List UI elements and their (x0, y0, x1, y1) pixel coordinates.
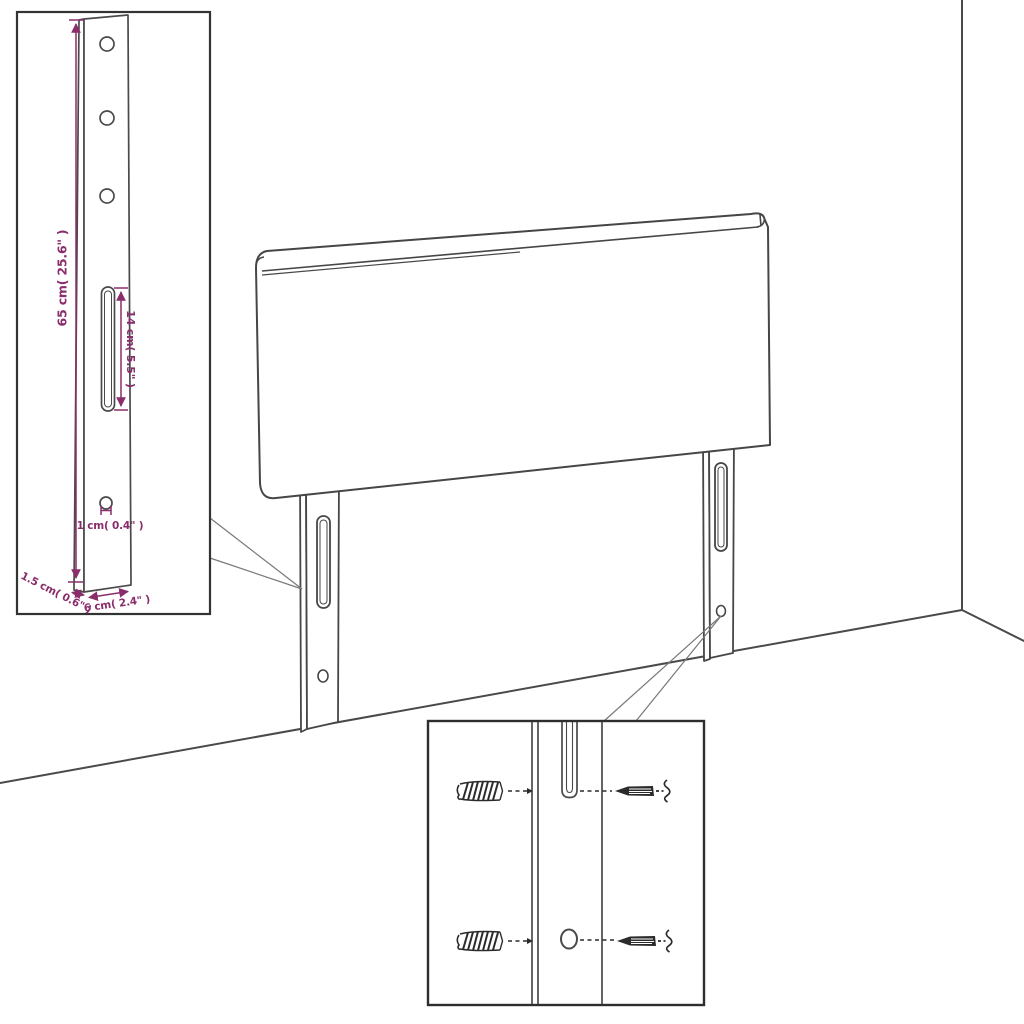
callout-lines (210, 518, 721, 721)
dim-label-slot-length: 14 cm( 5.5" ) (124, 310, 137, 388)
headboard-panel (256, 213, 770, 498)
bracket-hole-bottom (100, 497, 112, 509)
dim-label-height: 65 cm( 25.6" ) (55, 230, 70, 327)
floor-line-right (962, 610, 1024, 641)
right-leg-slot-inner (718, 467, 724, 547)
right-leg-hole (717, 606, 726, 617)
diagram-canvas: 65 cm( 25.6" ) 14 cm( 5.5" ) 1 cm( 0.4" … (0, 0, 1024, 1024)
left-leg-hole (318, 670, 328, 682)
headboard-dimension-diagram: 65 cm( 25.6" ) 14 cm( 5.5" ) 1 cm( 0.4" … (0, 0, 1024, 1024)
right-leg-bracket (703, 429, 734, 661)
bracket-hole-top-3 (100, 189, 114, 203)
bracket-slot-inner (105, 291, 112, 407)
callout-line-inset-to-left-leg-2 (210, 558, 302, 589)
left-leg-slot-inner (320, 520, 327, 604)
left-leg-bracket (300, 468, 339, 732)
callout-line-hole-to-inset-2 (636, 616, 721, 721)
callout-line-hole-to-inset-1 (604, 616, 721, 721)
bracket-dimension-inset: 65 cm( 25.6" ) 14 cm( 5.5" ) 1 cm( 0.4" … (17, 12, 210, 616)
wall-mounting-inset (428, 721, 704, 1005)
callout-line-inset-to-left-leg-1 (210, 518, 302, 589)
bracket-hole-top-2 (100, 111, 114, 125)
headboard-front-face (256, 213, 770, 498)
dim-label-hole: 1 cm( 0.4" ) (77, 520, 144, 532)
bracket-hole-top-1 (100, 37, 114, 51)
